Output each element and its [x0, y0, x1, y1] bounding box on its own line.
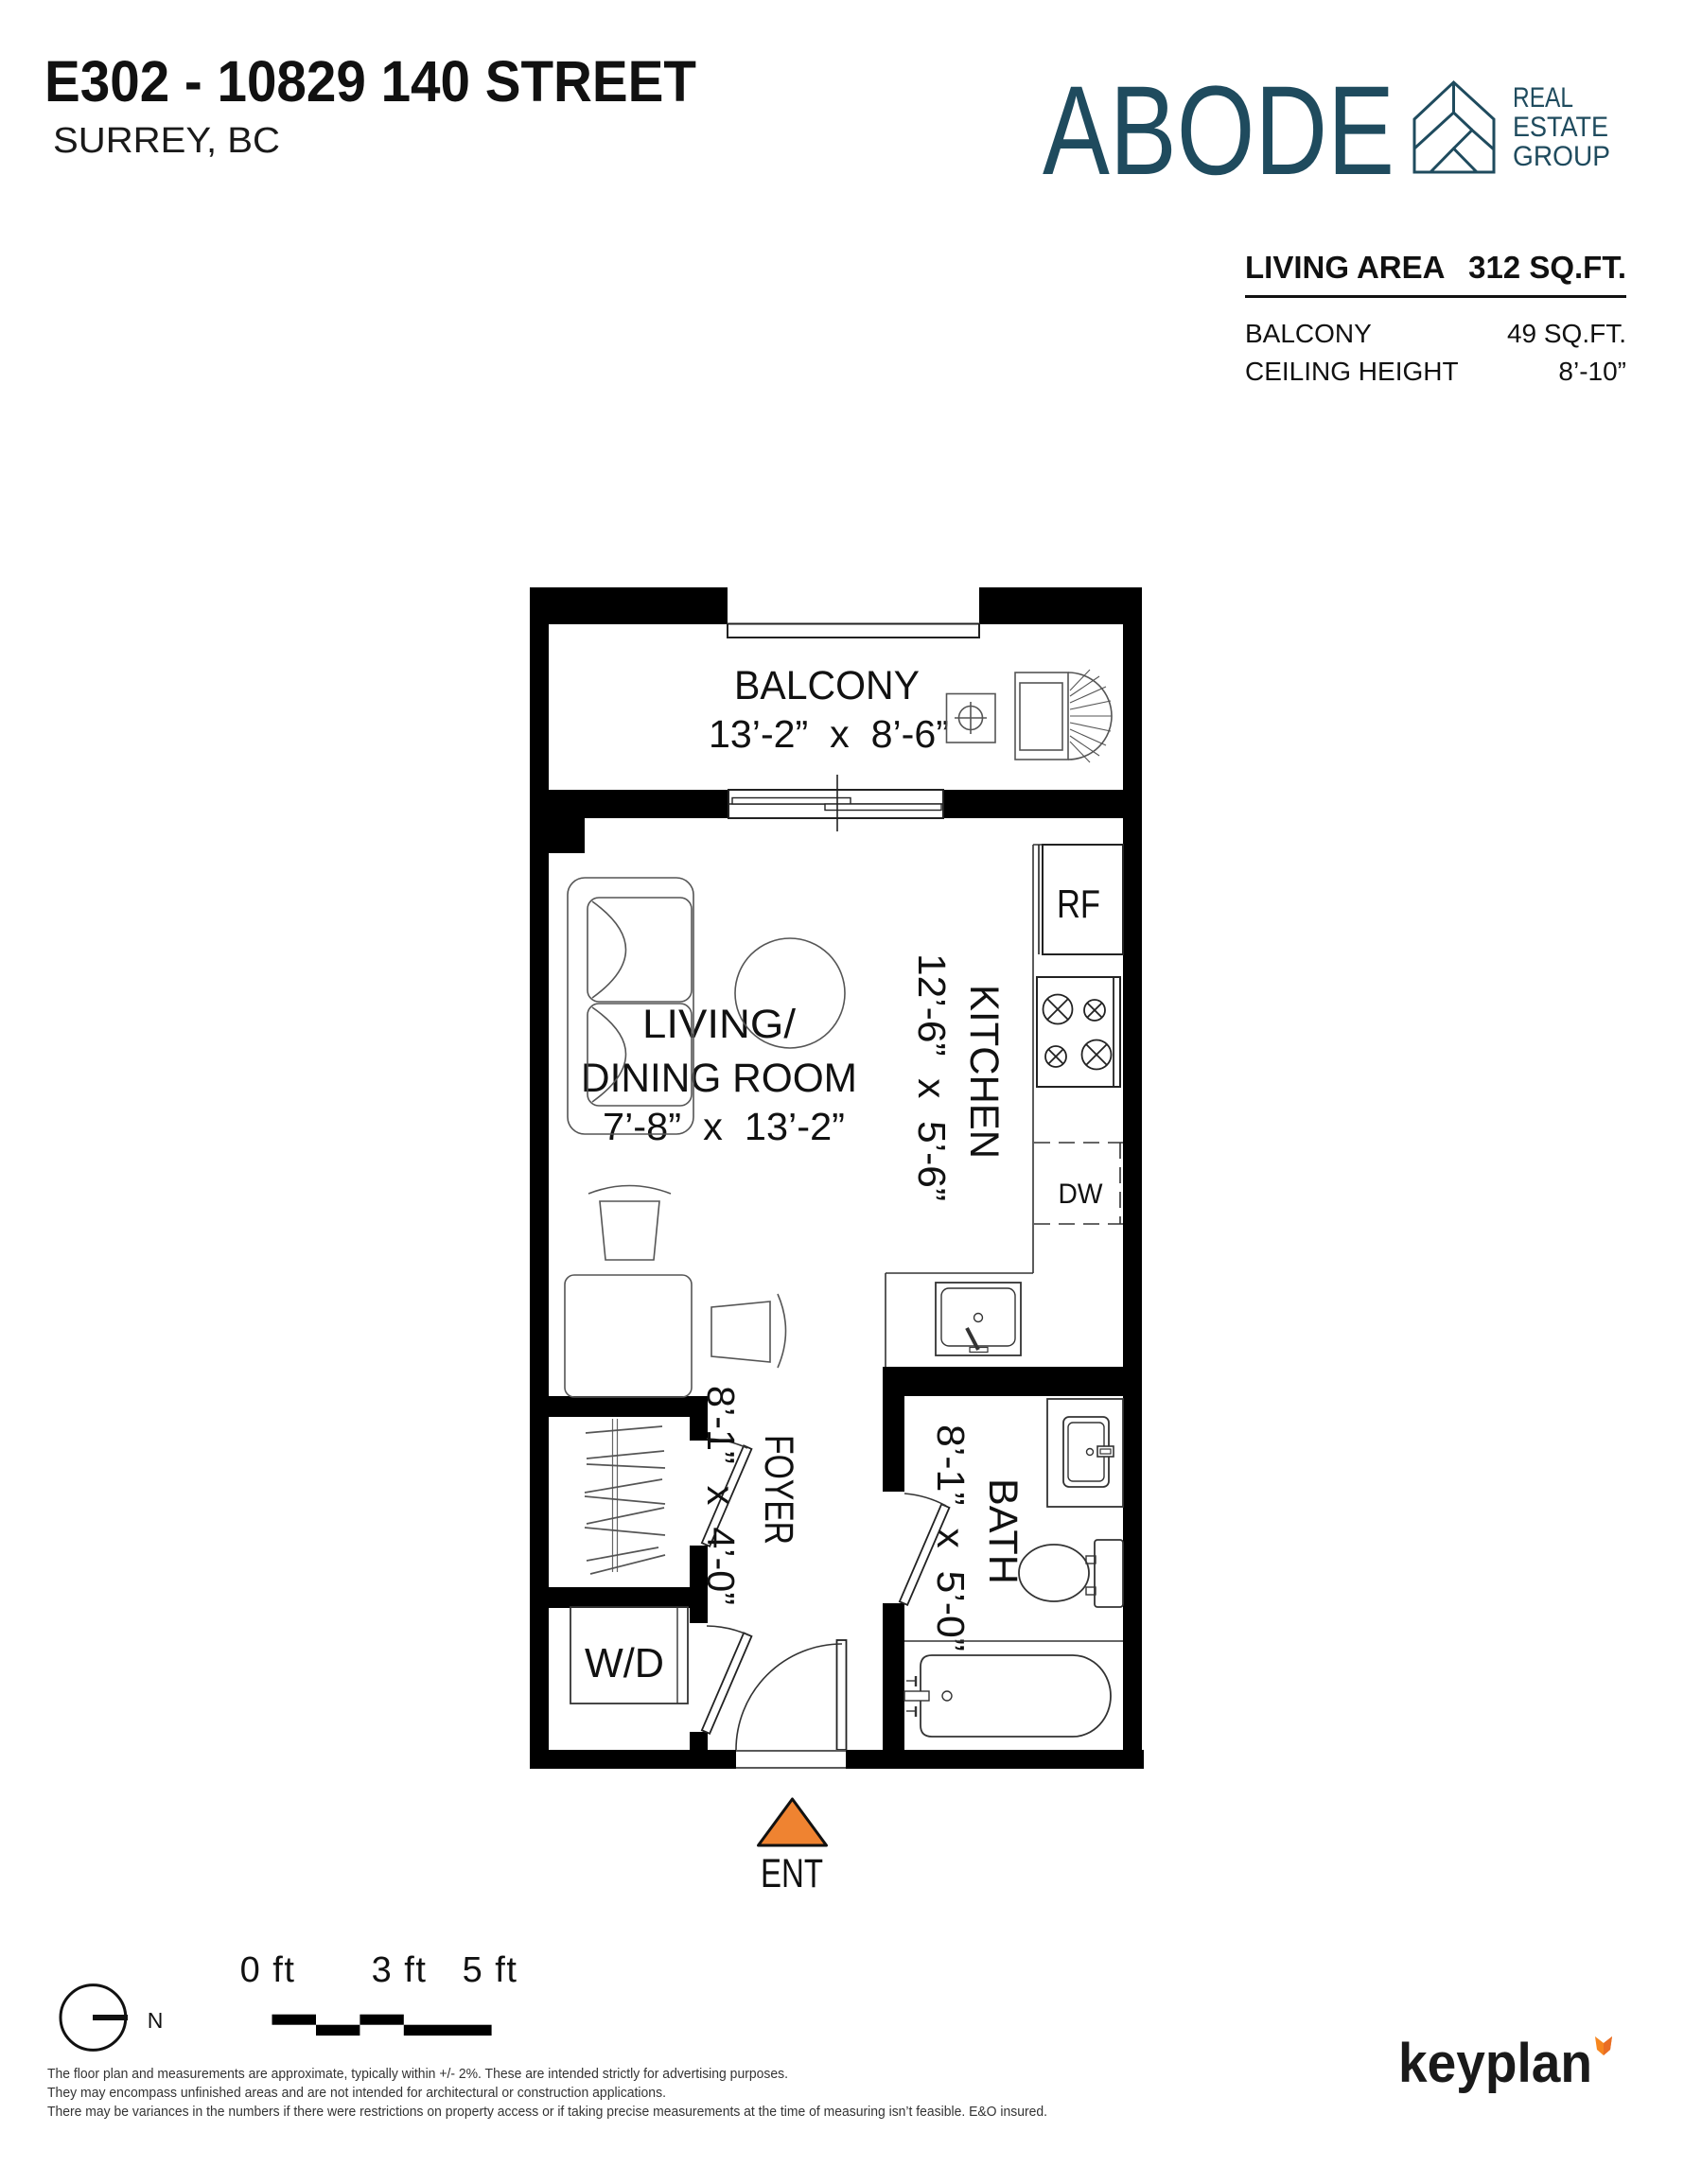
svg-text:DW: DW — [1059, 1179, 1104, 1210]
svg-text:They may encompass unfinished: They may encompass unfinished areas and … — [47, 2085, 666, 2101]
svg-text:LIVING AREA: LIVING AREA — [1245, 250, 1445, 285]
svg-text:BALCONY: BALCONY — [1245, 319, 1372, 348]
svg-text:W/D: W/D — [585, 1640, 664, 1686]
svg-text:keyplan: keyplan — [1398, 2033, 1592, 2094]
svg-text:DINING ROOM: DINING ROOM — [581, 1056, 857, 1101]
svg-text:3 ft: 3 ft — [372, 1950, 428, 1990]
svg-text:7’-8” x 13’-2”: 7’-8” x 13’-2” — [603, 1105, 845, 1148]
svg-text:49 SQ.FT.: 49 SQ.FT. — [1507, 319, 1626, 348]
svg-text:BALCONY: BALCONY — [734, 663, 920, 708]
svg-text:8’-1” x 4’-0”: 8’-1” x 4’-0” — [699, 1386, 743, 1605]
svg-text:KITCHEN: KITCHEN — [961, 985, 1007, 1159]
svg-text:ABODE: ABODE — [1043, 61, 1395, 201]
svg-text:RF: RF — [1057, 882, 1100, 926]
svg-text:5 ft: 5 ft — [463, 1950, 518, 1990]
svg-text:312 SQ.FT.: 312 SQ.FT. — [1468, 250, 1626, 285]
svg-text:ENT: ENT — [761, 1851, 823, 1896]
svg-text:The floor plan and measurement: The floor plan and measurements are appr… — [47, 2066, 788, 2082]
svg-text:N: N — [148, 2008, 164, 2033]
svg-text:8’-10”: 8’-10” — [1558, 357, 1626, 386]
svg-text:GROUP: GROUP — [1513, 141, 1610, 172]
svg-text:LIVING/: LIVING/ — [642, 1002, 796, 1047]
svg-text:There may be variances in the: There may be variances in the numbers if… — [47, 2104, 1047, 2120]
svg-text:FOYER: FOYER — [756, 1435, 801, 1545]
svg-text:REAL: REAL — [1513, 82, 1573, 114]
svg-text:12’-6” x 5’-6”: 12’-6” x 5’-6” — [910, 953, 954, 1201]
svg-text:SURREY, BC: SURREY, BC — [53, 121, 280, 161]
svg-text:CEILING HEIGHT: CEILING HEIGHT — [1245, 357, 1459, 386]
svg-text:0 ft: 0 ft — [240, 1950, 296, 1990]
svg-text:13’-2” x 8’-6”: 13’-2” x 8’-6” — [709, 712, 949, 756]
svg-text:ESTATE: ESTATE — [1513, 112, 1608, 143]
svg-text:E302 - 10829 140 STREET: E302 - 10829 140 STREET — [44, 49, 696, 114]
